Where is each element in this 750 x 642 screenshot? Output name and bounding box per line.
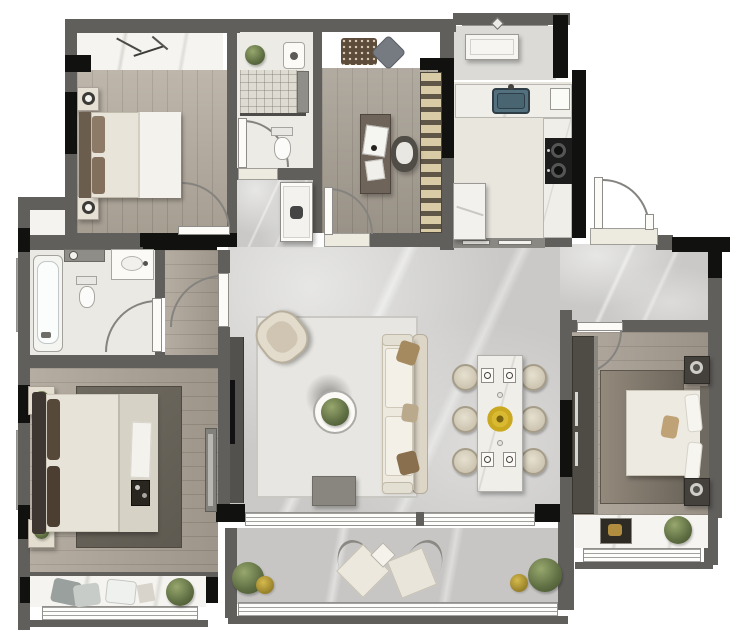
wall (278, 168, 313, 180)
cooktop-knob (547, 169, 550, 172)
balcony-plant (510, 574, 528, 592)
bed-pillow (92, 157, 105, 194)
wall-accent (672, 237, 730, 252)
cooktop-burner (551, 163, 566, 178)
wall-accent (535, 504, 560, 522)
bookshelf (420, 72, 442, 233)
bay-cushion (73, 582, 102, 607)
toilet-bowl (79, 286, 95, 308)
floor-plan (0, 0, 750, 642)
wall (440, 158, 454, 250)
wall (558, 512, 574, 610)
plate-ring (484, 372, 491, 379)
breakfast-tray (131, 480, 150, 506)
bay-decor (137, 583, 156, 604)
appliance-detail (470, 39, 514, 55)
wall-accent (18, 228, 30, 252)
wall (575, 562, 713, 569)
wardrobe-handle (575, 432, 578, 466)
basin-drain (290, 52, 298, 60)
wall-accent (572, 70, 586, 238)
threshold-bathroom-north (238, 168, 278, 180)
tv-screen (230, 380, 235, 444)
window-bedroom-east-bay (583, 548, 701, 563)
desk-papers (365, 159, 386, 181)
sliding-door-panel (498, 240, 532, 245)
wall-accent (65, 55, 91, 72)
shower-area (240, 70, 304, 115)
wall (708, 334, 722, 518)
balcony-plant (528, 558, 562, 592)
window-balcony-rail (238, 602, 558, 617)
wardrobe-front (594, 336, 598, 514)
wall (227, 19, 320, 32)
dining-chair (452, 448, 479, 475)
toilet-bowl (274, 137, 291, 160)
wall (227, 168, 238, 180)
cup (497, 440, 503, 446)
kitchen-sink-basin (497, 93, 525, 109)
tray-item (142, 493, 147, 498)
wall (18, 235, 143, 250)
wall (370, 233, 440, 247)
sink-faucet (508, 84, 514, 90)
bed-pillow (92, 116, 105, 153)
laptop (362, 125, 389, 158)
wall-accent (143, 235, 217, 250)
picture-accent (608, 524, 622, 536)
wall-accent (560, 400, 572, 477)
cup (497, 392, 503, 398)
door-leaf-bathroom-west (152, 298, 162, 352)
wall (313, 19, 456, 32)
wall (155, 250, 165, 298)
wall (656, 235, 673, 250)
wall (560, 332, 572, 400)
wall (227, 19, 237, 233)
sliding-window-living-balcony (245, 512, 535, 526)
wall (18, 355, 230, 368)
toilet-tank (76, 276, 97, 285)
wall (622, 320, 708, 332)
wall-accent (65, 92, 77, 154)
table-lamp (690, 361, 703, 374)
dining-chair (520, 364, 547, 391)
wall (18, 197, 65, 210)
bed-blanket (138, 112, 181, 198)
desk-chair-seat (396, 142, 413, 164)
table-lamp (82, 92, 95, 105)
cooktop-knob (547, 149, 550, 152)
table-lamp (690, 483, 703, 496)
wall (313, 19, 322, 233)
plate-ring (506, 372, 513, 379)
wall (708, 278, 722, 334)
bathtub-faucet (41, 332, 51, 338)
bed-headboard (700, 386, 709, 480)
bed-headboard (79, 112, 91, 198)
dining-chair (452, 406, 479, 433)
wall (28, 620, 208, 627)
plate-ring (484, 456, 491, 463)
tray-item (135, 485, 140, 490)
window-master-bay (42, 606, 198, 621)
room-entry (560, 244, 708, 322)
sofa-pillow (401, 403, 419, 423)
toilet-tank (271, 127, 293, 136)
bed-headboard (32, 392, 46, 534)
door-leaf-bedroom-east (577, 322, 623, 331)
door-leaf-corridor (218, 273, 229, 327)
flower-centerpiece (487, 406, 513, 432)
coffee-table-plant (321, 398, 349, 426)
sliding-door-panel (462, 240, 490, 245)
counter-kettle (69, 251, 78, 260)
wall (65, 19, 240, 33)
shower-glass-divider (240, 113, 306, 116)
bay-plant (664, 516, 692, 544)
bay-plant (166, 578, 194, 606)
vanity-basin (121, 256, 143, 271)
door-leaf-entry-main (594, 177, 603, 229)
table-lamp (82, 201, 95, 214)
bed-throw (130, 422, 152, 479)
wall (560, 320, 577, 332)
wall-accent (216, 504, 245, 522)
hall-vanity-basin (290, 206, 303, 219)
cooktop-burner (551, 143, 566, 158)
wardrobe-handle (575, 392, 578, 426)
wall (228, 616, 568, 624)
desk-accessory (371, 145, 377, 151)
threshold-entry (590, 228, 658, 245)
bed-pillow (47, 399, 60, 460)
media-bench (312, 476, 356, 506)
vanity-faucet (143, 261, 148, 266)
door-leaf-bedroom-nw (178, 226, 230, 235)
door-leaf-bathroom-north (238, 118, 247, 168)
sofa-armrest (382, 482, 413, 494)
door-arc-entry (603, 179, 650, 228)
dresser-front (208, 434, 213, 506)
dining-chair (520, 406, 547, 433)
wall (440, 19, 454, 58)
potted-plant (245, 45, 265, 65)
wall (218, 250, 230, 273)
wall-accent (553, 15, 568, 78)
balcony-plant (256, 576, 274, 594)
bay-cushion (105, 578, 137, 605)
bed-pillow (47, 466, 60, 527)
window-post (416, 512, 424, 526)
dining-chair (520, 448, 547, 475)
dining-chair (452, 364, 479, 391)
door-leaf-entry-small (645, 214, 654, 230)
door-leaf-study (324, 187, 333, 235)
wall-accent (708, 252, 722, 278)
plate-ring (506, 456, 513, 463)
storage-niche (30, 209, 65, 235)
threshold-study (324, 233, 370, 247)
shower-fixture (297, 71, 309, 113)
dish-rack (550, 88, 570, 110)
